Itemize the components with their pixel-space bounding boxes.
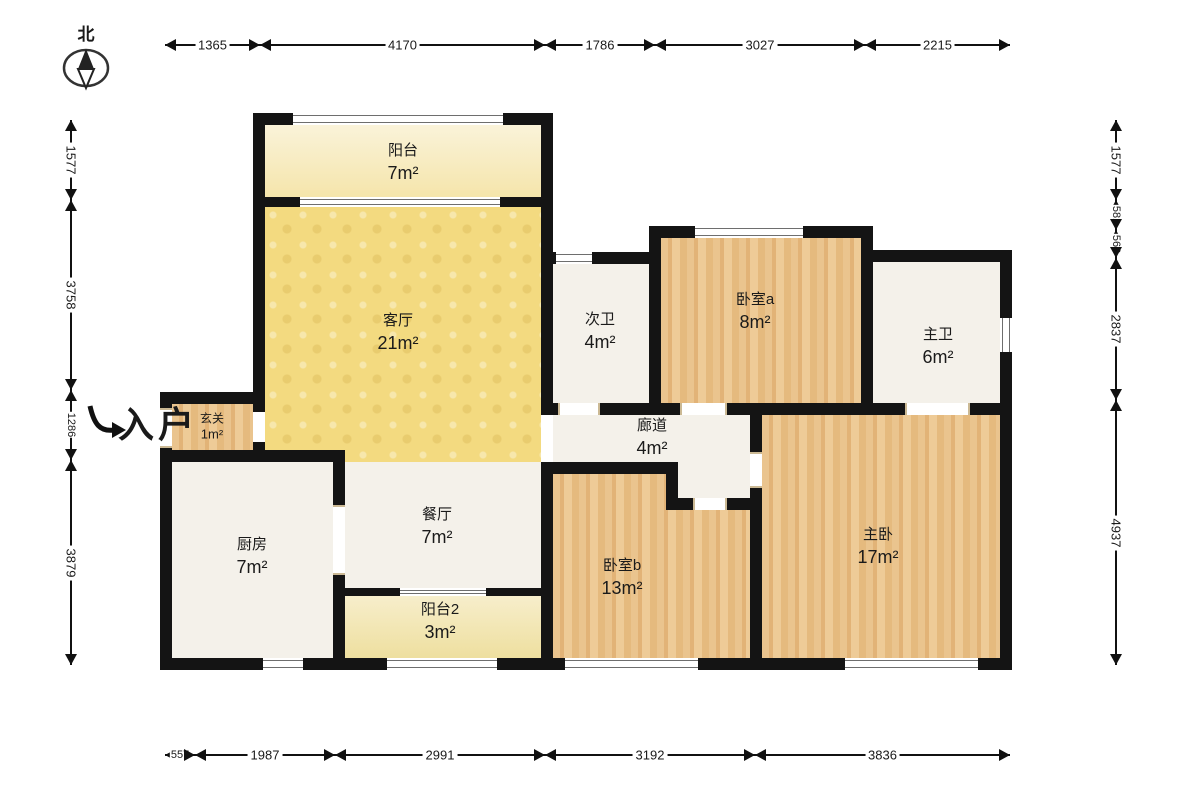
room-area: 13m² xyxy=(601,576,642,600)
room-area: 3m² xyxy=(421,620,459,644)
compass: 北 xyxy=(55,26,117,97)
room-area: 4m² xyxy=(585,330,616,354)
room-name: 廊道 xyxy=(637,416,668,436)
wall xyxy=(541,462,678,474)
label-kitchen: 厨房 7m² xyxy=(237,535,268,579)
dim-bottom-5: 3836 xyxy=(755,744,1010,766)
dim-top-3: 1786 xyxy=(545,34,655,56)
dim-top-5: 2215 xyxy=(865,34,1010,56)
room-area: 17m² xyxy=(857,545,898,569)
label-foyer: 玄关 1m² xyxy=(200,412,224,443)
door-opening xyxy=(680,403,727,415)
wall xyxy=(1000,250,1012,670)
room-name: 卧室a xyxy=(736,290,774,310)
room-area: 7m² xyxy=(388,161,419,185)
room-name: 卧室b xyxy=(601,556,642,576)
window xyxy=(263,658,303,670)
compass-icon xyxy=(55,44,117,92)
room-name: 客厅 xyxy=(377,311,418,331)
entry-label: 入户 xyxy=(118,396,198,448)
room-name: 主卫 xyxy=(923,325,954,345)
door-opening xyxy=(750,452,762,488)
window xyxy=(387,658,497,670)
wall xyxy=(486,588,541,596)
label-corridor: 廊道 4m² xyxy=(637,416,668,460)
dim-top-2: 4170 xyxy=(260,34,545,56)
window xyxy=(293,113,503,125)
window xyxy=(400,588,486,596)
wall xyxy=(750,403,762,670)
window xyxy=(565,658,698,670)
dim-right-5: 4937 xyxy=(1105,400,1127,665)
dim-bottom-1: 557 xyxy=(165,744,195,766)
room-area: 7m² xyxy=(237,555,268,579)
room-name: 玄关 xyxy=(200,412,224,427)
dim-right-4: 2837 xyxy=(1105,258,1127,400)
wall xyxy=(345,588,400,596)
room-name: 主卧 xyxy=(857,525,898,545)
window xyxy=(695,226,803,238)
dim-top-4: 3027 xyxy=(655,34,865,56)
room-name: 阳台 xyxy=(388,141,419,161)
wall xyxy=(160,450,345,462)
dim-bottom-3: 2991 xyxy=(335,744,545,766)
room-name: 阳台2 xyxy=(421,600,459,620)
room-area: 21m² xyxy=(377,331,418,355)
label-bedroom-a: 卧室a 8m² xyxy=(736,290,774,334)
room-area: 6m² xyxy=(923,345,954,369)
window xyxy=(845,658,978,670)
room-area: 1m² xyxy=(200,427,224,443)
label-balcony1: 阳台 7m² xyxy=(388,141,419,185)
door-opening xyxy=(558,403,600,415)
wall xyxy=(253,113,265,404)
wall xyxy=(253,404,265,412)
room-area: 4m² xyxy=(637,436,668,460)
dim-right-1: 1577 xyxy=(1105,120,1127,200)
corridor-notch xyxy=(678,462,750,498)
wall xyxy=(861,250,1012,262)
room-area: 7m² xyxy=(422,525,453,549)
wall xyxy=(541,462,553,670)
room-name: 餐厅 xyxy=(422,505,453,525)
room-name: 厨房 xyxy=(237,535,268,555)
dim-top-1: 1365 xyxy=(165,34,260,56)
label-balcony2: 阳台2 3m² xyxy=(421,600,459,644)
room-area: 8m² xyxy=(736,310,774,334)
dim-left-1: 1577 xyxy=(60,120,82,200)
dim-right-2: 581 xyxy=(1105,200,1127,230)
door-opening xyxy=(333,505,345,575)
wall xyxy=(649,226,661,415)
window xyxy=(300,197,500,207)
floor-plan: 阳台 7m² 客厅 21m² 次卫 4m² 卧室a 8m² 主卫 6m² 玄关 … xyxy=(0,0,1177,785)
label-bath2: 次卫 4m² xyxy=(585,310,616,354)
label-living: 客厅 21m² xyxy=(377,311,418,355)
door-opening xyxy=(905,403,970,415)
door-opening xyxy=(693,498,727,510)
dim-bottom-2: 1987 xyxy=(195,744,335,766)
wall xyxy=(253,442,265,450)
room-name: 次卫 xyxy=(585,310,616,330)
label-bath-master: 主卫 6m² xyxy=(923,325,954,369)
dim-bottom-4: 3192 xyxy=(545,744,755,766)
dim-right-3: 568 xyxy=(1105,230,1127,258)
compass-north-label: 北 xyxy=(55,26,117,44)
dim-left-4: 3879 xyxy=(60,460,82,665)
dim-left-2: 3758 xyxy=(60,200,82,390)
label-bedroom-b: 卧室b 13m² xyxy=(601,556,642,600)
window xyxy=(1000,318,1012,352)
label-master-bedroom: 主卧 17m² xyxy=(857,525,898,569)
dim-left-3: 1286 xyxy=(60,390,82,460)
window xyxy=(556,252,592,264)
label-dining: 餐厅 7m² xyxy=(422,505,453,549)
